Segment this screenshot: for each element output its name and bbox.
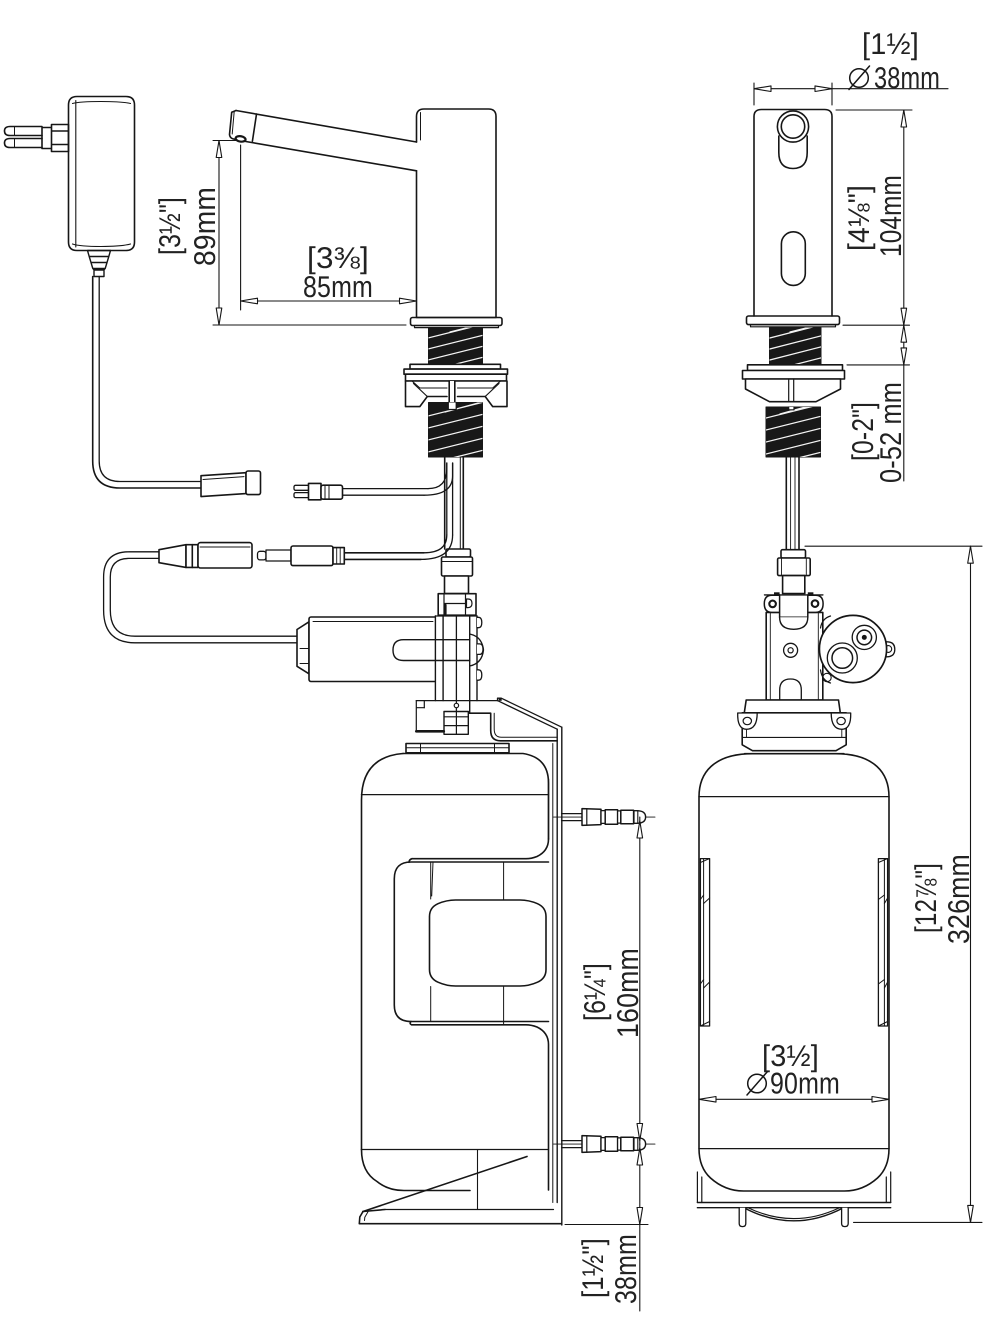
- svg-text:0-52 mm: 0-52 mm: [875, 382, 908, 483]
- svg-text:38mm: 38mm: [610, 1234, 643, 1304]
- svg-text:326mm: 326mm: [943, 854, 976, 944]
- svg-text:[3½"]: [3½"]: [154, 197, 187, 255]
- svg-text:90mm: 90mm: [770, 1068, 840, 1101]
- svg-text:85mm: 85mm: [303, 271, 373, 304]
- svg-text:[6¼"]: [6¼"]: [579, 963, 612, 1021]
- svg-text:38mm: 38mm: [874, 62, 940, 95]
- svg-text:89mm: 89mm: [189, 187, 222, 266]
- svg-text:[12⅞"]: [12⅞"]: [910, 863, 943, 933]
- svg-text:[4⅛"]: [4⅛"]: [843, 185, 876, 251]
- svg-text:[1½]: [1½]: [862, 28, 919, 61]
- svg-text:160mm: 160mm: [612, 948, 645, 1038]
- svg-text:104mm: 104mm: [875, 175, 908, 257]
- svg-text:[1½"]: [1½"]: [577, 1238, 610, 1298]
